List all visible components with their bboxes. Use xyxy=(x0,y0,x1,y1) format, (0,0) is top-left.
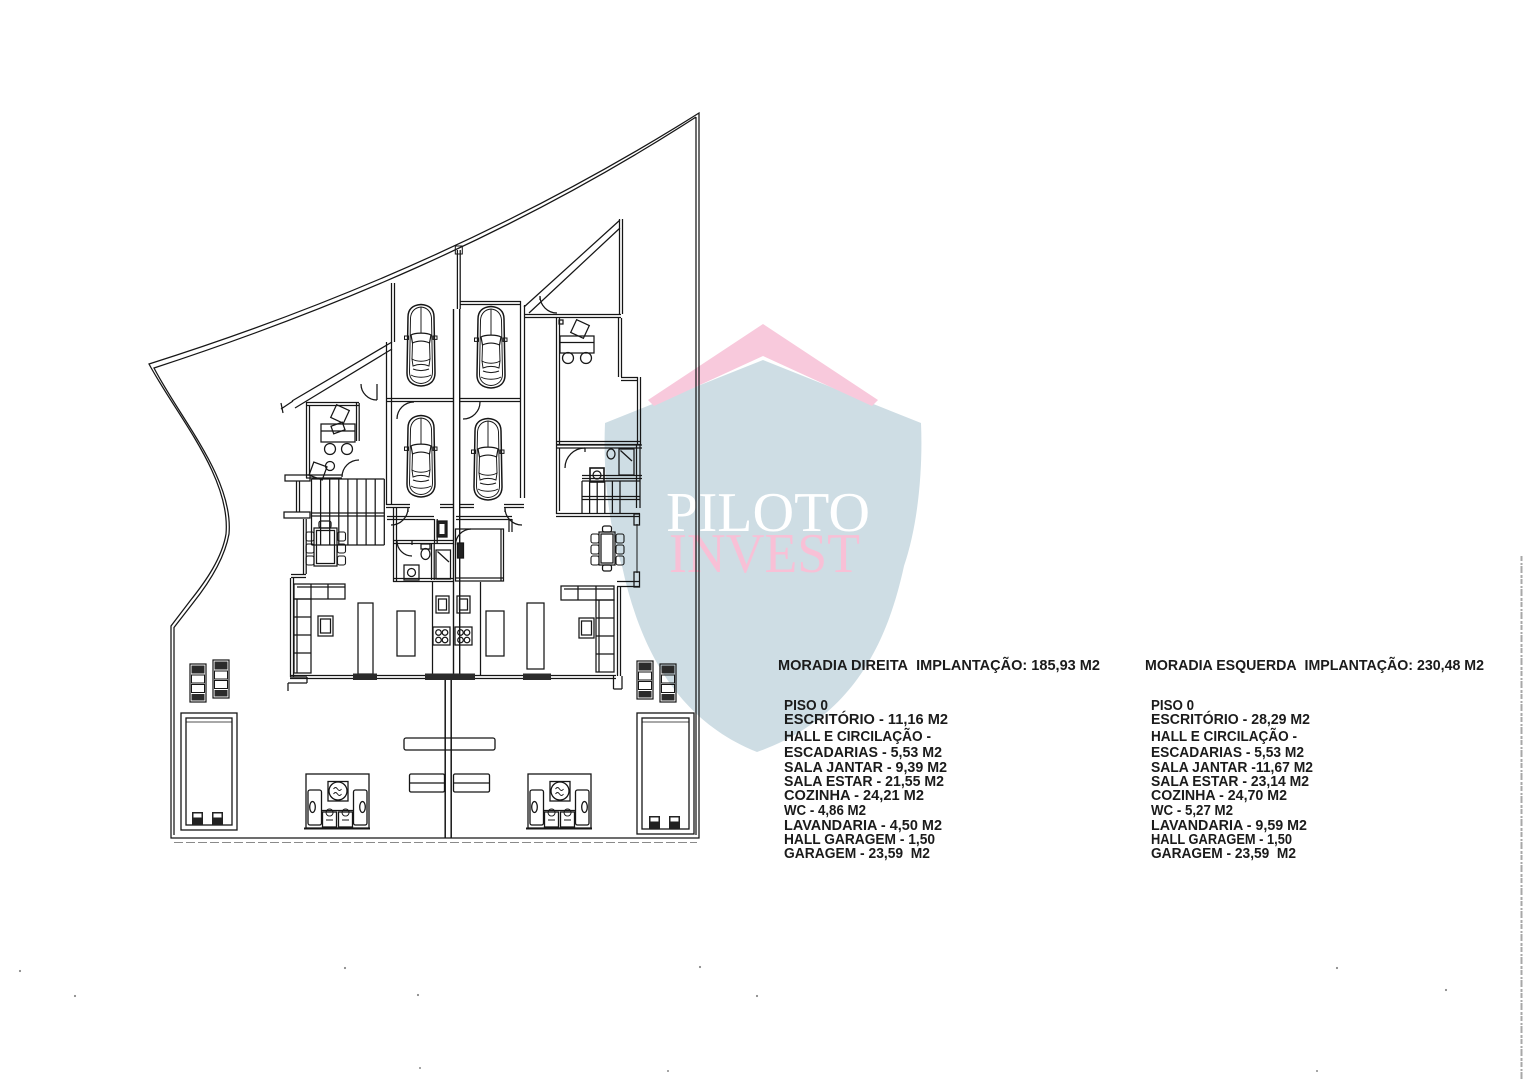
svg-text:ESCRITÓRIO - 11,16 M2: ESCRITÓRIO - 11,16 M2 xyxy=(784,710,948,728)
svg-text:HALL E CIRCILAÇÃO -: HALL E CIRCILAÇÃO - xyxy=(784,727,931,745)
svg-text:MORADIA DIREITA IMPLANTAÇÃO:: MORADIA DIREITA IMPLANTAÇÃO: 185,93 M2 xyxy=(778,656,1100,674)
svg-text:WC - 5,27 M2: WC - 5,27 M2 xyxy=(1151,803,1233,819)
svg-text:MORADIA ESQUERDA IMPLANTAÇÃO:: MORADIA ESQUERDA IMPLANTAÇÃO: 230,48 M2 xyxy=(1145,656,1484,674)
svg-text:ESCRITÓRIO - 28,29 M2: ESCRITÓRIO - 28,29 M2 xyxy=(1151,710,1310,728)
svg-text:ESCADARIAS - 5,53 M2: ESCADARIAS - 5,53 M2 xyxy=(1151,745,1304,761)
svg-text:COZINHA - 24,21 M2: COZINHA - 24,21 M2 xyxy=(784,788,924,804)
svg-text:ESCADARIAS - 5,53 M2: ESCADARIAS - 5,53 M2 xyxy=(784,745,942,761)
svg-text:GARAGEM - 23,59 M2: GARAGEM - 23,59 M2 xyxy=(784,846,930,862)
svg-text:WC - 4,86 M2: WC - 4,86 M2 xyxy=(784,803,866,819)
svg-text:HALL E CIRCILAÇÃO -: HALL E CIRCILAÇÃO - xyxy=(1151,727,1297,745)
svg-text:GARAGEM - 23,59 M2: GARAGEM - 23,59 M2 xyxy=(1151,846,1296,862)
svg-text:COZINHA - 24,70 M2: COZINHA - 24,70 M2 xyxy=(1151,788,1287,804)
svg-text:INVEST: INVEST xyxy=(669,523,860,585)
